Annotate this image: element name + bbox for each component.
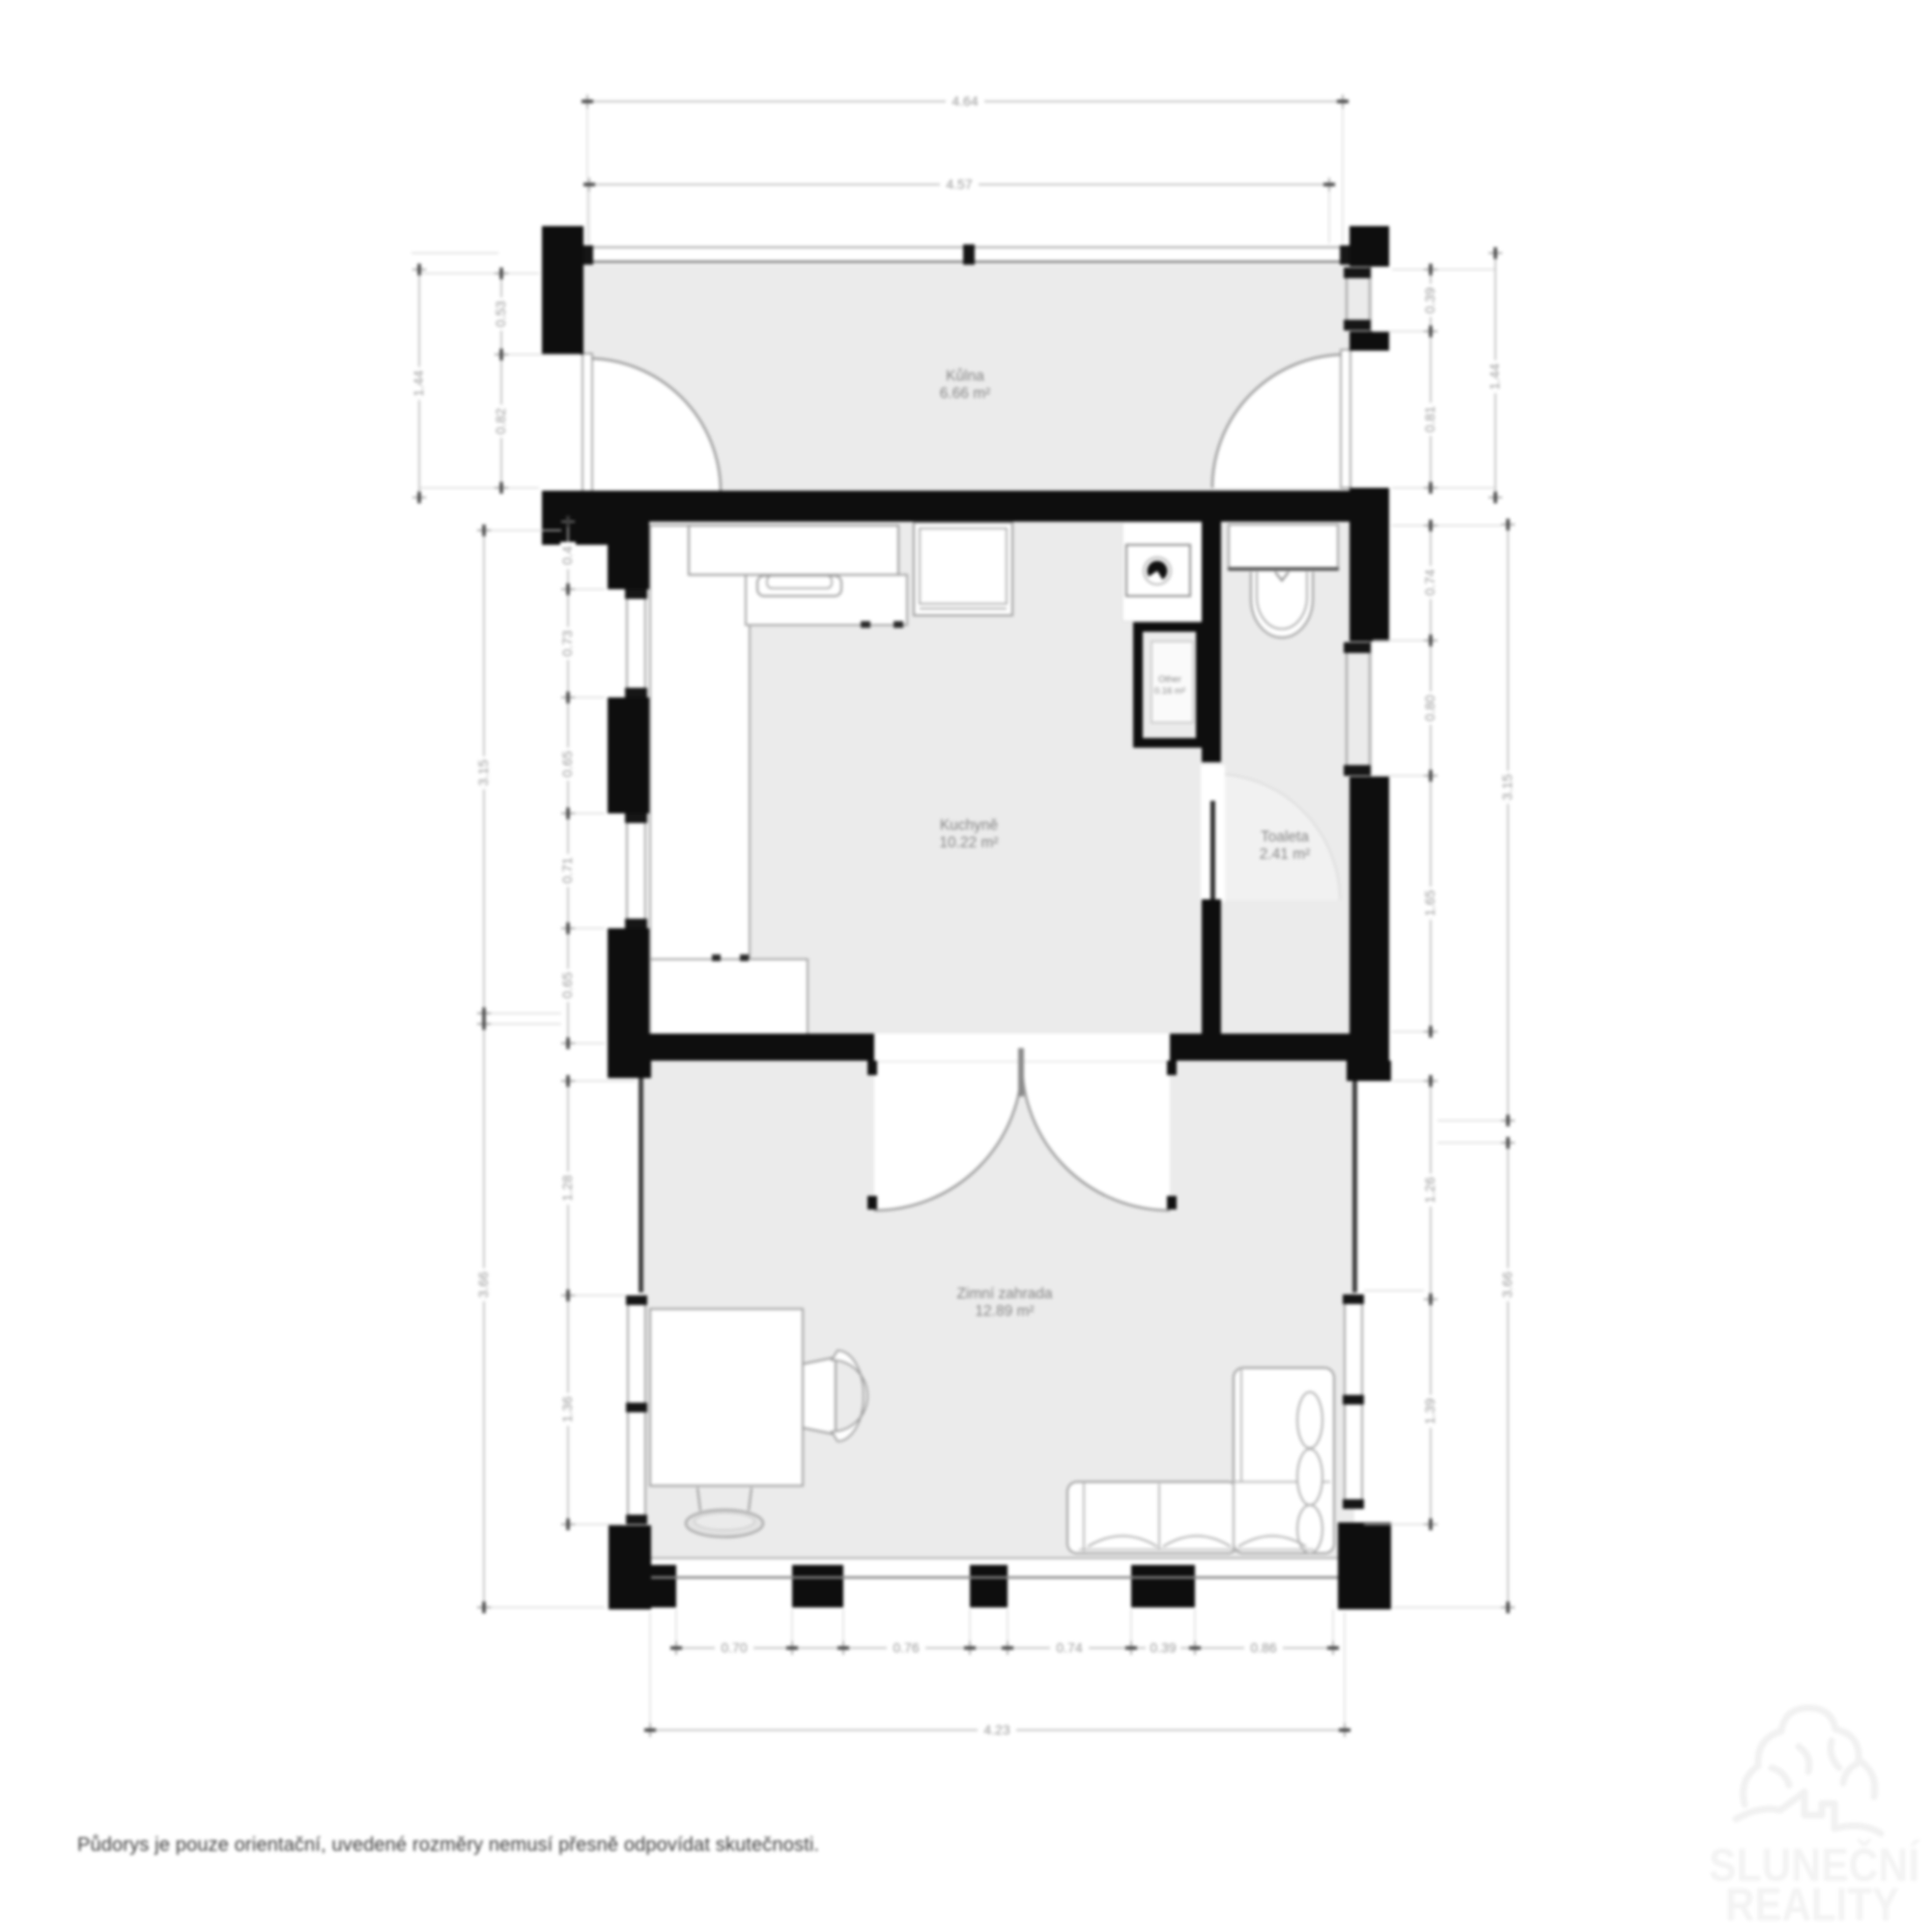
svg-text:0.86: 0.86 — [1250, 1640, 1276, 1656]
svg-text:6.66 m²: 6.66 m² — [940, 385, 991, 402]
svg-text:0.16 m²: 0.16 m² — [1154, 686, 1185, 696]
svg-text:0.81: 0.81 — [1422, 406, 1437, 432]
svg-text:1.39: 1.39 — [1422, 1398, 1437, 1424]
svg-text:Zimní zahrada: Zimní zahrada — [956, 1286, 1052, 1302]
svg-text:0.53: 0.53 — [493, 300, 508, 327]
svg-text:0.74: 0.74 — [1056, 1640, 1082, 1656]
svg-text:0.80: 0.80 — [1422, 695, 1437, 721]
svg-text:0.82: 0.82 — [493, 408, 508, 434]
svg-text:0.76: 0.76 — [893, 1640, 919, 1656]
svg-text:4.64: 4.64 — [952, 94, 978, 109]
svg-text:Other: Other — [1158, 674, 1181, 685]
svg-text:1.65: 1.65 — [1422, 890, 1437, 916]
svg-text:2.41 m²: 2.41 m² — [1260, 846, 1311, 863]
svg-text:0.71: 0.71 — [559, 857, 575, 883]
svg-text:REALITY: REALITY — [1725, 1880, 1899, 1931]
svg-text:Půdorys je pouze orientační, u: Půdorys je pouze orientační, uvedené roz… — [77, 1834, 819, 1856]
svg-text:3.66: 3.66 — [1499, 1271, 1515, 1297]
svg-text:4.57: 4.57 — [946, 177, 972, 192]
svg-text:12.89 m²: 12.89 m² — [975, 1303, 1034, 1320]
svg-text:0.4: 0.4 — [559, 546, 575, 565]
svg-text:4.23: 4.23 — [983, 1722, 1009, 1738]
svg-text:3.15: 3.15 — [1499, 774, 1515, 800]
svg-text:Kůlna: Kůlna — [946, 368, 984, 384]
svg-text:0.39: 0.39 — [1422, 287, 1437, 313]
svg-text:1.44: 1.44 — [1487, 363, 1502, 389]
svg-text:1.28: 1.28 — [559, 1175, 575, 1201]
svg-text:0.70: 0.70 — [721, 1640, 747, 1656]
svg-text:0.65: 0.65 — [559, 972, 575, 998]
svg-text:Toaleta: Toaleta — [1261, 829, 1309, 845]
svg-text:1.44: 1.44 — [411, 370, 426, 396]
svg-text:0.65: 0.65 — [559, 751, 575, 777]
svg-text:1.26: 1.26 — [1422, 1177, 1437, 1203]
svg-text:1.36: 1.36 — [559, 1396, 575, 1422]
svg-text:0.39: 0.39 — [1150, 1640, 1176, 1656]
svg-text:3.66: 3.66 — [475, 1271, 491, 1297]
svg-text:3.15: 3.15 — [475, 759, 491, 785]
svg-text:10.22 m²: 10.22 m² — [939, 835, 998, 851]
svg-text:Kuchyně: Kuchyně — [940, 817, 998, 834]
svg-text:0.74: 0.74 — [1422, 569, 1437, 595]
svg-text:0.73: 0.73 — [559, 630, 575, 656]
